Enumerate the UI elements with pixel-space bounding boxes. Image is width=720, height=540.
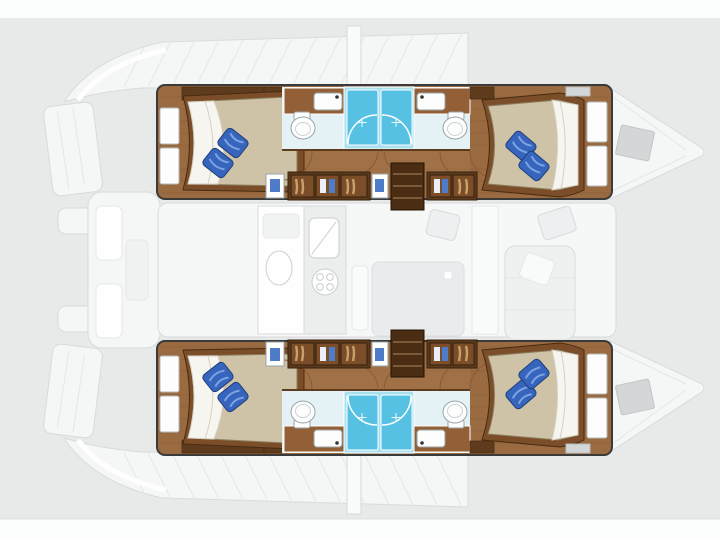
mast-post bbox=[347, 26, 361, 88]
faucet bbox=[420, 95, 424, 99]
companionway-steps bbox=[391, 163, 424, 210]
forepeak-door-panel bbox=[587, 146, 607, 186]
wardrobe-bay bbox=[453, 175, 474, 197]
transom-door-panel bbox=[160, 148, 179, 184]
shower-stall bbox=[381, 90, 412, 145]
wardrobe bbox=[427, 172, 477, 200]
transom-door-panel bbox=[160, 108, 179, 144]
galley-basin bbox=[266, 251, 292, 285]
folded-clothes-icon bbox=[434, 179, 440, 193]
faucet bbox=[335, 95, 339, 99]
galley bbox=[258, 206, 346, 334]
wardrobe-bay bbox=[316, 175, 339, 197]
mast-step bbox=[444, 271, 452, 279]
folded-clothes-icon bbox=[320, 179, 326, 193]
folded-clothes-icon bbox=[442, 179, 448, 193]
starboard-hull bbox=[157, 330, 612, 455]
port-hull bbox=[157, 85, 612, 210]
galley-appliance bbox=[263, 214, 299, 238]
companionway-strip bbox=[472, 206, 498, 334]
salon-ghost bbox=[158, 203, 616, 340]
floor-plan-page bbox=[0, 0, 720, 540]
wardrobe bbox=[288, 172, 370, 200]
platform-outline bbox=[43, 101, 104, 196]
bench-seat bbox=[352, 266, 368, 330]
cockpit-bench bbox=[96, 284, 122, 338]
catamaran-floor-plan bbox=[0, 0, 720, 540]
folded-clothes-icon bbox=[329, 179, 335, 193]
cabinet bbox=[470, 87, 494, 99]
deck-hatch bbox=[615, 125, 654, 161]
transom-platform-port bbox=[43, 101, 104, 196]
folded-clothes-icon bbox=[375, 179, 384, 192]
cockpit-table bbox=[126, 240, 148, 300]
folded-clothes-icon bbox=[270, 179, 280, 192]
shower-stall bbox=[347, 90, 378, 145]
stove bbox=[312, 269, 338, 295]
transom-platform-starboard bbox=[43, 343, 104, 438]
forepeak-door-panel bbox=[587, 102, 607, 142]
cabin-hatch bbox=[566, 87, 590, 96]
cockpit-bench bbox=[96, 206, 122, 260]
